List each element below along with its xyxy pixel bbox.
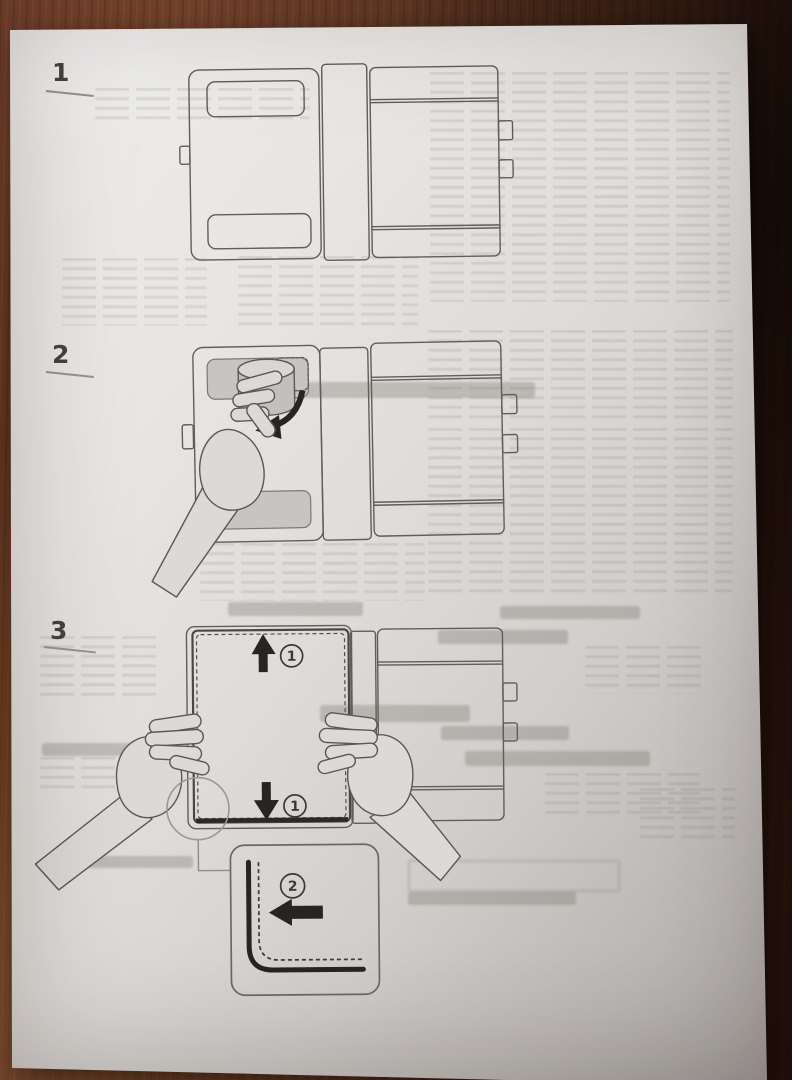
callout-up: 1: [281, 645, 303, 667]
insert-plate: [192, 629, 350, 822]
step2-number: 2: [52, 342, 69, 367]
step1-number: 1: [52, 60, 69, 85]
right-tab-upper: [502, 394, 517, 413]
step2-illustration: [137, 328, 530, 607]
paper-shadow-wrapper: 1 2 3: [0, 0, 792, 1080]
corner-detail-box: 2: [230, 844, 379, 995]
photo-of-instruction-sheet: 1 2 3: [0, 0, 792, 1080]
bottom-flap-slot: [208, 214, 311, 249]
back-panel-bottom-seam2: [374, 503, 504, 505]
bleedthrough-text-block: [585, 646, 703, 694]
back-panel-top-seam: [370, 98, 498, 100]
right-tab-lower: [502, 434, 517, 452]
back-panel-bottom-seam2: [372, 228, 500, 230]
step3-illustration: 1 1: [18, 614, 534, 1010]
back-panel-top-seam: [378, 661, 503, 662]
left-hand: [34, 713, 211, 890]
plate-outline: [192, 629, 350, 822]
callout-detail-label: 2: [288, 879, 298, 895]
spine-strip: [320, 347, 372, 540]
plate-stitch-line: [196, 633, 346, 818]
callout-down-label: 1: [290, 799, 300, 815]
spine-strip: [322, 64, 370, 261]
back-panel-top-seam2: [371, 378, 501, 380]
step2-underline: [46, 371, 94, 378]
back-panel-top-seam2: [370, 101, 498, 103]
callout-detail: 2: [281, 874, 305, 898]
left-closure-tab: [182, 425, 193, 449]
top-flap-slot: [207, 81, 304, 117]
detail-box-outline: [230, 844, 379, 995]
right-tab-upper: [498, 121, 512, 140]
right-tab-upper: [503, 683, 517, 701]
folio-case-open: [179, 62, 515, 263]
middle-finger: [145, 729, 204, 747]
arrow-left-icon: [269, 899, 323, 926]
back-panel-top-seam2: [378, 664, 503, 665]
right-tab-lower: [499, 160, 513, 178]
middle-finger: [319, 728, 378, 745]
left-closure-tab: [180, 146, 190, 164]
bleedthrough-text-block: [640, 788, 735, 840]
instruction-sheet-paper: 1 2 3: [0, 0, 792, 1080]
back-panel-outline: [371, 341, 505, 536]
callout-down: 1: [284, 795, 306, 817]
back-panel-bottom-seam: [372, 225, 500, 227]
back-panel-top-seam: [371, 375, 501, 377]
step1-illustration: [177, 56, 520, 271]
right-tab-lower: [503, 723, 517, 741]
step1-underline: [46, 90, 94, 97]
detail-connector-line: [198, 839, 230, 870]
arrow-up-icon: [251, 634, 275, 672]
right-hand: [316, 711, 460, 882]
plate-thick-bottom-edge: [196, 819, 348, 820]
magnifier-circle: [167, 777, 230, 840]
callout-up-label: 1: [287, 649, 297, 665]
palm: [199, 429, 265, 511]
back-panel-bottom-seam: [374, 500, 504, 502]
arrow-down-icon: [254, 782, 279, 820]
